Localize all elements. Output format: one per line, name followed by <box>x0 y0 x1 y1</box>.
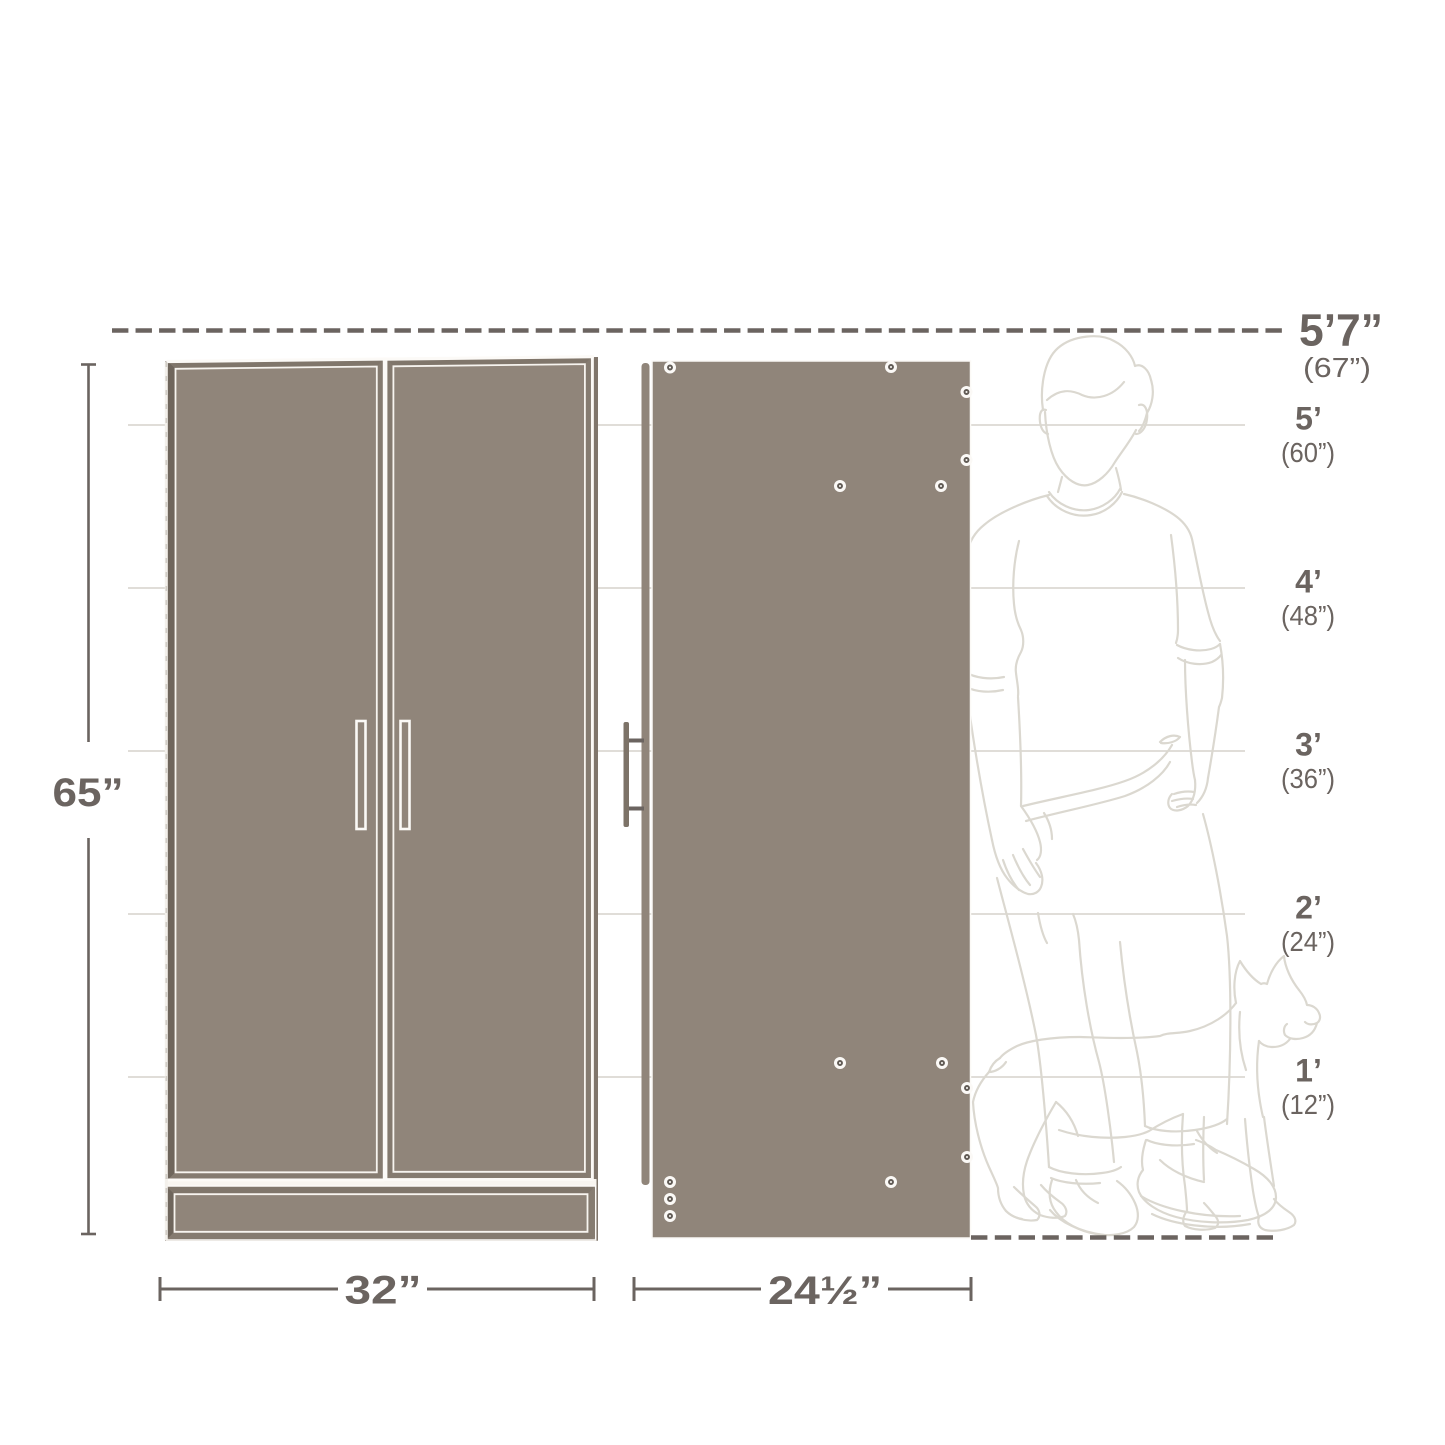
svg-text:(67”): (67”) <box>1303 352 1371 383</box>
svg-text:5’: 5’ <box>1295 401 1322 437</box>
svg-text:2’: 2’ <box>1295 890 1322 926</box>
svg-text:(48”): (48”) <box>1281 600 1335 631</box>
svg-text:5’7”: 5’7” <box>1299 305 1383 356</box>
svg-text:65”: 65” <box>53 771 124 815</box>
svg-text:(12”): (12”) <box>1281 1089 1335 1120</box>
svg-text:3’: 3’ <box>1295 727 1322 763</box>
svg-text:(36”): (36”) <box>1281 763 1335 794</box>
svg-text:24½”: 24½” <box>768 1269 882 1313</box>
svg-text:32”: 32” <box>345 1269 422 1313</box>
svg-text:4’: 4’ <box>1295 564 1322 600</box>
svg-text:1’: 1’ <box>1295 1053 1322 1089</box>
svg-text:(60”): (60”) <box>1281 437 1335 468</box>
svg-text:(24”): (24”) <box>1281 926 1335 957</box>
